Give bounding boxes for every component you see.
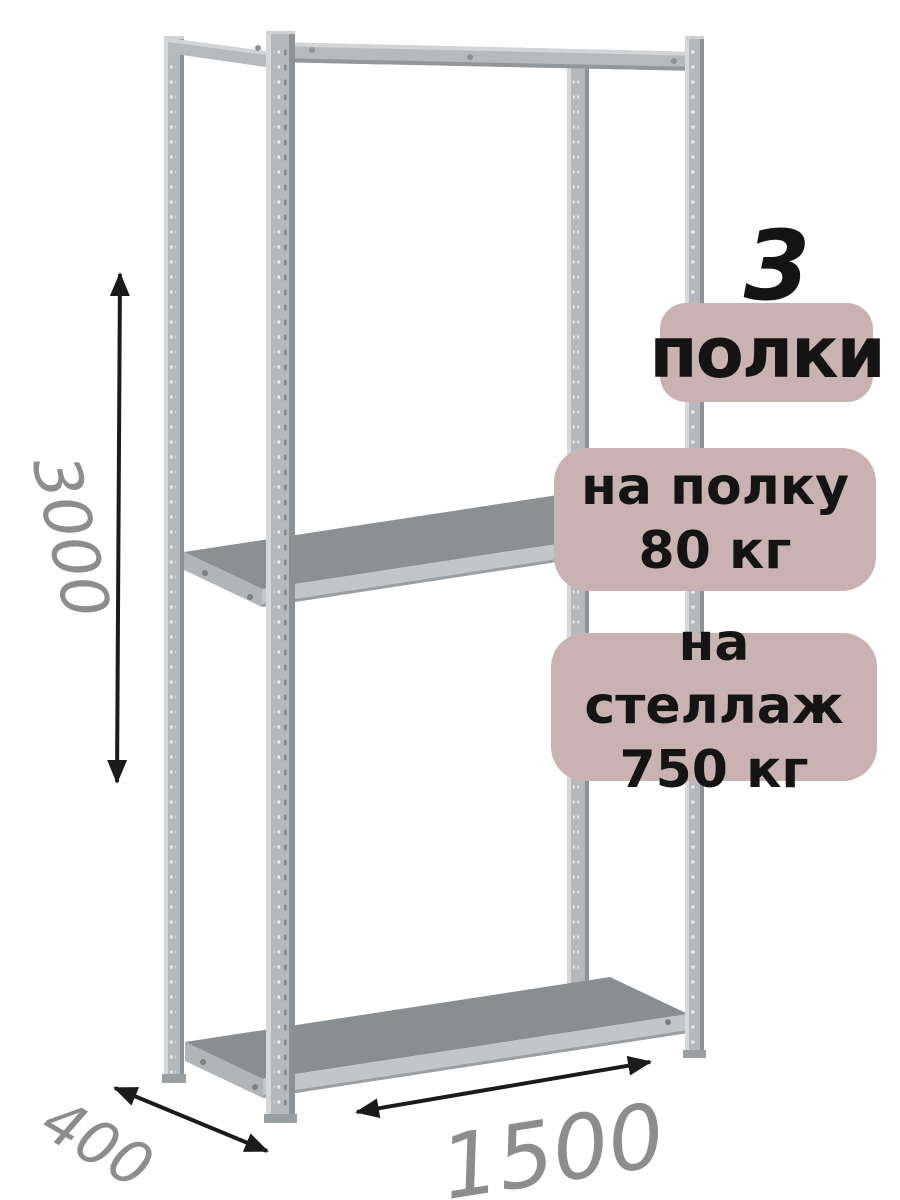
shelf-load-line1: на полку: [581, 456, 849, 519]
bottom-shelf: [185, 977, 688, 1098]
shelving-rack-illustration: [0, 0, 900, 1200]
rack-load-badge: на стеллаж 750 кг: [551, 633, 877, 781]
shelf-count-label: полки: [649, 312, 883, 394]
rack-load-line2: 750 кг: [619, 739, 808, 802]
height-dimension-arrow: [117, 274, 120, 782]
post-back-left: [162, 36, 186, 1083]
post-front-left: [264, 31, 297, 1123]
shelf-count-badge: полки: [660, 303, 873, 402]
shelf-load-badge: на полку 80 кг: [554, 448, 876, 591]
product-image: 3000 400 1500 3 полки на полку 80 кг на …: [0, 0, 900, 1200]
top-shelf: [168, 38, 700, 71]
rack-load-line1: на стеллаж: [551, 612, 877, 739]
shelf-count-number: 3: [744, 218, 811, 314]
shelf-load-line2: 80 кг: [639, 520, 792, 583]
